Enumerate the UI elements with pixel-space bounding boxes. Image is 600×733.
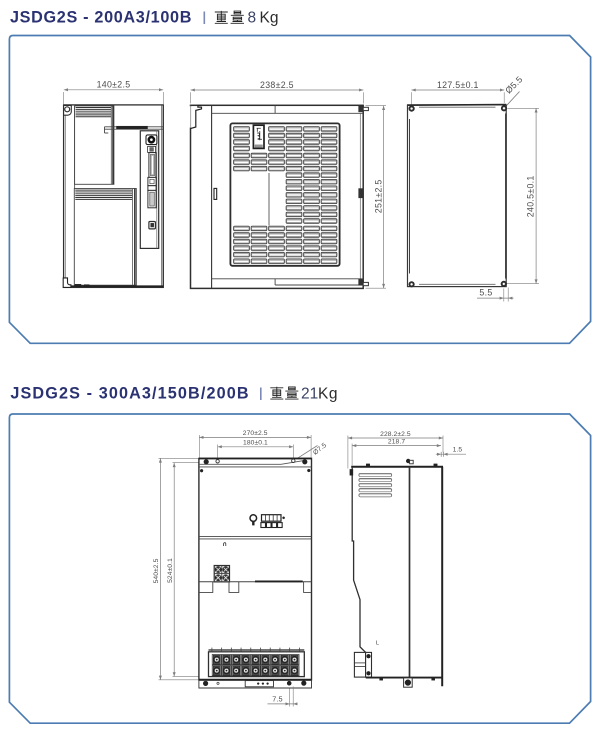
svg-text:540±2.5: 540±2.5 [153,558,160,583]
svg-text:7.5: 7.5 [272,694,282,703]
svg-text:127.5±0.1: 127.5±0.1 [437,80,479,90]
svg-text:218.7: 218.7 [388,438,405,445]
svg-text:Ø5.5: Ø5.5 [503,74,524,95]
svg-text:21: 21 [301,385,318,402]
svg-text:524±0.1: 524±0.1 [167,558,174,583]
svg-text:8: 8 [248,10,257,27]
svg-text:140±2.5: 140±2.5 [97,80,131,90]
svg-text:240.5±0.1: 240.5±0.1 [526,175,536,217]
svg-text:L: L [376,640,379,646]
svg-text:JSDG2S - 200A3/100B: JSDG2S - 200A3/100B [10,9,192,27]
svg-text:180±0.1: 180±0.1 [243,440,268,447]
svg-text:270±2.5: 270±2.5 [243,430,268,437]
svg-text:5.5: 5.5 [479,288,492,298]
svg-text:Ø7.5: Ø7.5 [312,442,328,457]
svg-text:Kg: Kg [260,10,279,27]
svg-text:238±2.5: 238±2.5 [260,80,294,90]
svg-text:1.5: 1.5 [453,446,463,453]
svg-text:JSDG2S - 300A3/150B/200B: JSDG2S - 300A3/150B/200B [10,384,249,402]
svg-text:Kg: Kg [318,385,338,402]
svg-text:228.2±2.5: 228.2±2.5 [380,431,411,438]
svg-text:251±2.5: 251±2.5 [373,179,383,213]
